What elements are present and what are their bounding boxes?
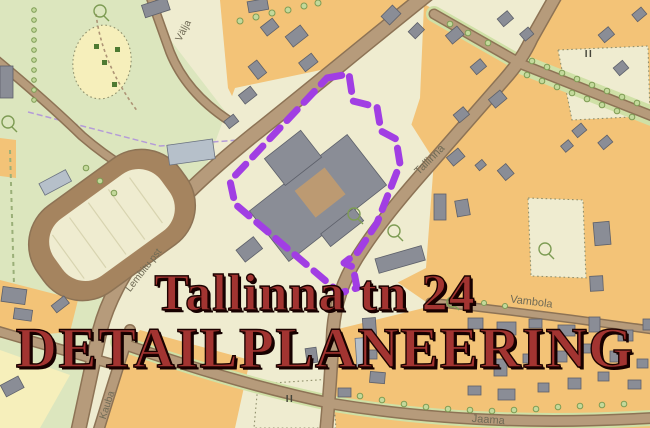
storey-annotation-s: II xyxy=(286,394,295,405)
street-label-jaama: Jaama xyxy=(471,413,506,427)
base-map: Välja Tallinna Lembitu pst Kauba Vambola… xyxy=(0,0,650,428)
storey-annotation-ne: II xyxy=(585,49,594,60)
detail-plan-cover: Välja Tallinna Lembitu pst Kauba Vambola… xyxy=(0,0,650,428)
